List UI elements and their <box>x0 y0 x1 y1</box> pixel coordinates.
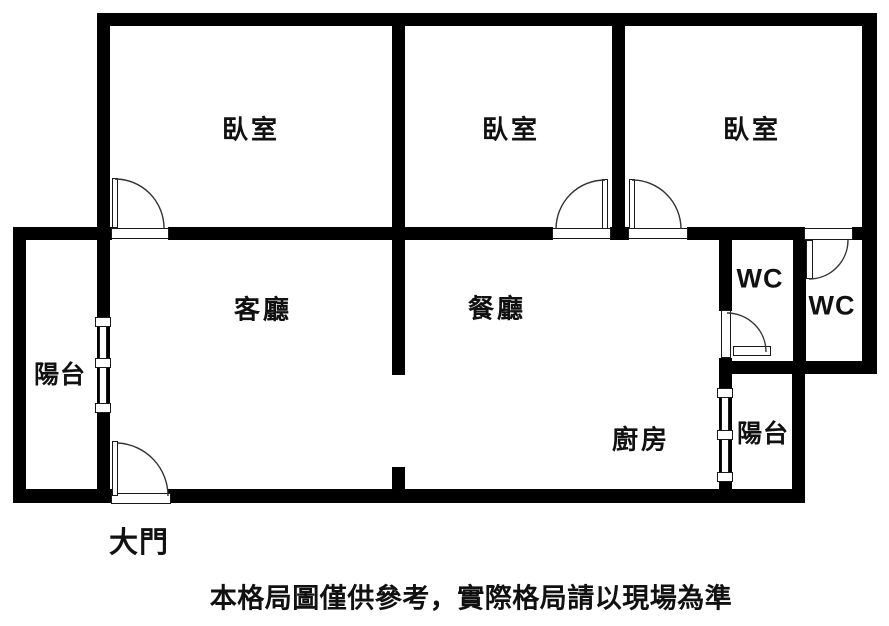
door-leaf-main <box>112 441 118 496</box>
window-balcony-right-cap-mid <box>717 430 733 440</box>
entrance-label: 大門 <box>109 519 169 561</box>
room-label-balcony-left: 陽台 <box>34 355 86 391</box>
wall-west-main <box>97 13 110 503</box>
window-living-west-rail-2 <box>99 367 107 404</box>
door-arc-wc2 <box>809 240 848 279</box>
threshold-bedroom2-door <box>552 228 611 239</box>
wall-top <box>97 13 877 26</box>
wall-wc-south <box>719 361 877 374</box>
door-leaf-wc1 <box>733 346 771 356</box>
door-arc-bedroom3 <box>632 180 681 229</box>
room-label-dining-room: 餐廳 <box>468 289 526 326</box>
window-balcony-right-cap-top <box>717 388 733 398</box>
door-leaf-bedroom3 <box>629 179 635 229</box>
threshold-wc2-door <box>804 228 853 240</box>
wall-east-outer <box>862 13 877 374</box>
door-leaf-wc2 <box>806 240 813 279</box>
wall-bedroom1-bedroom2 <box>392 13 405 240</box>
room-label-wc-2: WC <box>809 291 856 322</box>
threshold-bedroom1-door <box>111 228 169 239</box>
wall-living-dining-upper <box>392 240 405 375</box>
window-balcony-right-rail-1 <box>721 397 729 431</box>
window-balcony-right-rail-2 <box>721 439 729 473</box>
threshold-wc1-door <box>721 310 731 358</box>
wall-balcony-left-outer <box>13 227 26 503</box>
threshold-bedroom3-door <box>628 228 688 239</box>
room-label-bedroom-3: 臥室 <box>723 110 781 147</box>
wall-wc1-wc2 <box>793 240 806 361</box>
window-balcony-right-cap-bottom <box>717 472 733 482</box>
wall-balcony-right-east <box>792 374 805 503</box>
room-label-bedroom-1: 臥室 <box>222 110 280 147</box>
room-label-balcony-right: 陽台 <box>737 414 789 450</box>
door-arc-bedroom1 <box>115 179 164 228</box>
room-label-wc-1: WC <box>737 264 784 295</box>
window-living-west-cap-mid <box>95 358 111 368</box>
door-arc-bedroom2 <box>556 180 605 229</box>
door-leaf-bedroom1 <box>112 178 118 228</box>
room-label-living-room: 客廳 <box>234 290 292 327</box>
room-label-bedroom-2: 臥室 <box>482 110 540 147</box>
threshold-main-door <box>111 493 171 504</box>
window-living-west-cap-top <box>95 317 111 327</box>
window-living-west-rail-1 <box>99 326 107 359</box>
room-label-kitchen: 廚房 <box>612 420 670 457</box>
wall-bedroom2-bedroom3 <box>612 13 625 240</box>
floor-plan-canvas: 臥室 臥室 臥室 客廳 餐廳 廚房 WC WC 陽台 陽台 大門 本格局圖僅供參… <box>0 0 889 626</box>
disclaimer-caption: 本格局圖僅供參考，實際格局請以現場為準 <box>210 577 733 616</box>
window-living-west-cap-bottom <box>95 403 111 413</box>
door-leaf-bedroom2 <box>602 179 608 229</box>
